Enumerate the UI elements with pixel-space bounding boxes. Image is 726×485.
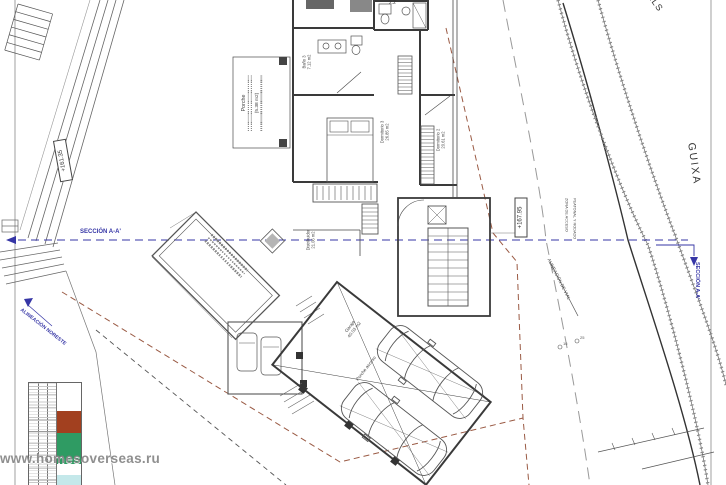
legend-table [28,382,82,485]
survey-point [558,345,562,349]
terrace-rooms [228,322,302,394]
porch-notes-block: Porche (5.38 m2) [240,64,282,142]
stairs-corridor [313,184,378,234]
room-label-distribuidor: Distribuidor21.06 m2 [306,213,317,268]
pool-steps [296,296,324,324]
wardrobe-strip [398,56,434,184]
page-borders [15,0,711,485]
room-label-bano3: Baño 37.12 m2 [302,35,313,90]
stairs-top-left [5,4,53,60]
legend-cell-header [57,383,81,412]
pillar [296,352,303,359]
furniture-top [306,0,334,9]
survey-point [575,339,579,343]
access-zone-label-line2: PEATONAL Y RODADO [572,198,576,239]
site-plan-canvas [0,0,726,485]
legend-cell-cyan [57,475,81,485]
setback-line-red [62,28,529,485]
bed [327,118,373,182]
floor-plan-page: GUIXA ELS +161.35 +167.95 SECCIÓN A-A' S… [0,0,726,485]
section-label-left: SECCIÓN A-A' [80,229,121,235]
furniture-top [350,0,372,12]
survey-point-label: 16 [563,342,567,346]
access-steps [280,383,314,414]
section-line [6,236,698,266]
street-right [503,0,726,485]
room-label-dorm3: Dormitorio 326.85 m2 [380,105,391,160]
legend-cell-red [57,411,81,434]
dimension-ticks [598,428,714,469]
elevator-box [428,206,446,224]
watermark: www.homesoverseas.ru [0,451,160,466]
section-label-right: SECCIÓN A-A' [694,262,700,299]
elevation-marker-plan: +167.95 [515,198,528,238]
room-label-bano2: 2.2 [389,1,396,6]
car-1 [369,316,491,427]
survey-point-label: 25 [580,336,584,340]
street-top-left [20,0,124,247]
room-label-dorm2: Dormitorio 220.61 m2 [436,113,447,168]
house-walls [293,0,490,316]
access-zone-label-line1: ZONA DE ACCESO [564,198,568,232]
legend-color-column [56,383,81,485]
